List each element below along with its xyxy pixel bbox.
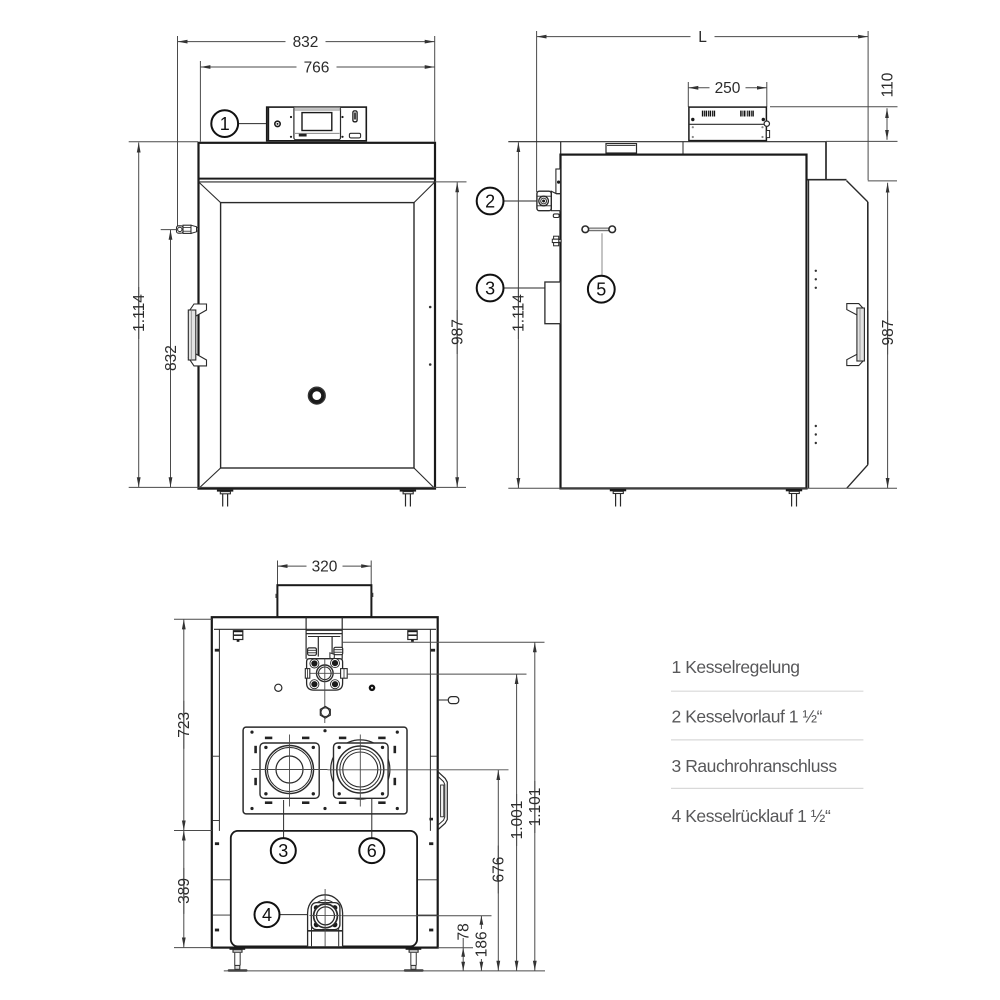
svg-text:5: 5 [596, 280, 606, 300]
svg-text:186: 186 [474, 931, 491, 957]
svg-text:723: 723 [176, 712, 193, 738]
svg-text:6: 6 [367, 841, 377, 861]
svg-text:832: 832 [163, 345, 180, 371]
svg-text:3: 3 [278, 841, 288, 861]
svg-text:1.101: 1.101 [527, 788, 544, 827]
svg-text:1: 1 [220, 114, 230, 134]
svg-text:766: 766 [304, 59, 330, 76]
svg-text:250: 250 [715, 80, 741, 97]
svg-text:676: 676 [491, 857, 508, 883]
svg-text:389: 389 [176, 878, 193, 904]
svg-text:2 Kesselvorlauf 1 ½“: 2 Kesselvorlauf 1 ½“ [672, 706, 823, 726]
svg-text:3: 3 [485, 278, 495, 298]
svg-text:3 Rauchrohranschluss: 3 Rauchrohranschluss [672, 756, 838, 776]
svg-text:987: 987 [880, 320, 897, 346]
svg-text:832: 832 [293, 34, 319, 51]
svg-text:78: 78 [456, 923, 473, 940]
svg-text:320: 320 [312, 558, 338, 575]
svg-text:4: 4 [262, 905, 272, 925]
svg-text:2: 2 [485, 191, 495, 211]
svg-text:1 Kesselregelung: 1 Kesselregelung [672, 657, 800, 677]
svg-text:L: L [698, 29, 707, 46]
svg-text:110: 110 [879, 72, 896, 97]
svg-text:1.001: 1.001 [509, 801, 526, 840]
svg-text:987: 987 [450, 319, 467, 345]
svg-text:4 Kesselrücklauf 1 ½“: 4 Kesselrücklauf 1 ½“ [672, 806, 831, 826]
svg-text:1.114: 1.114 [511, 294, 528, 332]
svg-text:1.114: 1.114 [131, 294, 148, 332]
